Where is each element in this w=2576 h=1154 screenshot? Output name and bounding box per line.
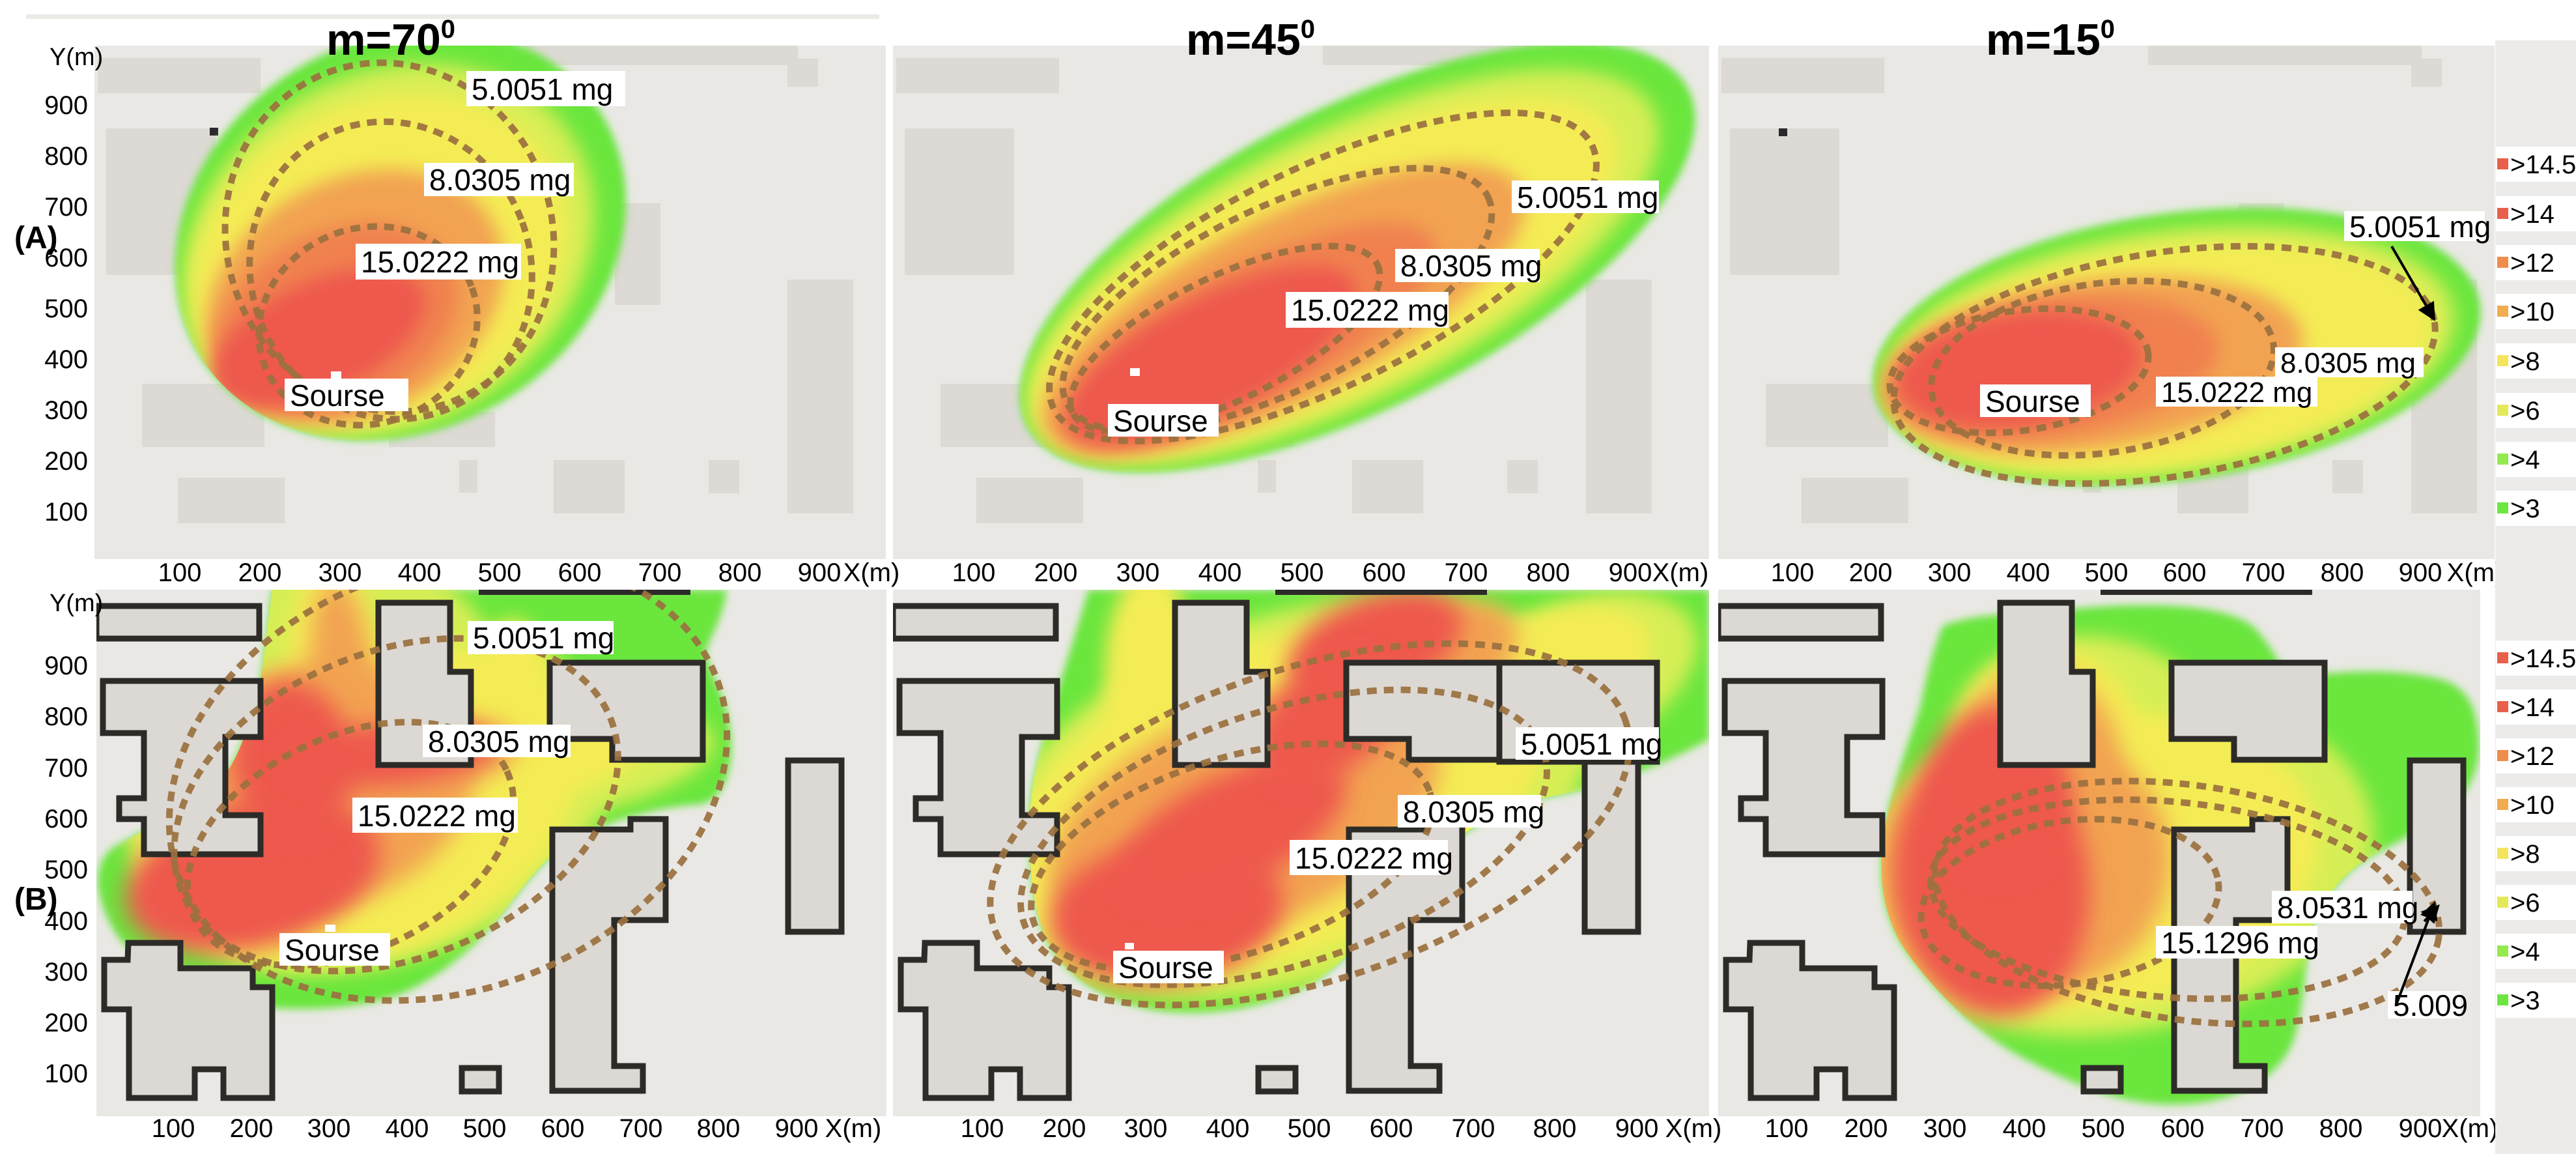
svg-text:5.0051 mg: 5.0051 mg [2349,210,2491,244]
svg-text:900: 900 [2399,558,2442,587]
svg-text:X(m): X(m) [2442,1114,2498,1143]
svg-text:>14.5: >14.5 [2510,151,2576,179]
svg-text:Sourse: Sourse [285,933,380,967]
svg-text:800: 800 [44,142,88,171]
svg-text:800: 800 [2321,558,2364,587]
svg-text:15.1296 mg: 15.1296 mg [2161,926,2319,960]
svg-text:200: 200 [238,558,282,587]
svg-text:100: 100 [961,1114,1004,1143]
svg-text:100: 100 [1771,558,1815,587]
svg-text:600: 600 [2163,558,2207,587]
svg-text:400: 400 [2003,1114,2046,1143]
svg-text:>12: >12 [2510,742,2555,771]
svg-text:8.0305 mg: 8.0305 mg [1400,249,1542,283]
svg-text:Sourse: Sourse [290,379,385,412]
svg-text:400: 400 [44,345,88,374]
svg-text:5.009: 5.009 [2393,988,2468,1022]
svg-text:500: 500 [2085,558,2129,587]
svg-text:900: 900 [1609,558,1652,587]
svg-text:500: 500 [463,1114,507,1143]
svg-text:300: 300 [307,1114,351,1143]
svg-text:X(m): X(m) [825,1114,882,1143]
svg-text:600: 600 [44,805,88,833]
svg-text:800: 800 [44,702,88,731]
svg-text:400: 400 [1206,1114,1250,1143]
svg-text:700: 700 [1452,1114,1495,1143]
svg-text:700: 700 [638,558,682,587]
svg-text:600: 600 [2161,1114,2205,1143]
svg-text:500: 500 [44,856,88,884]
svg-text:200: 200 [1034,558,1078,587]
svg-text:15.0222 mg: 15.0222 mg [1291,293,1449,327]
svg-text:15.0222 mg: 15.0222 mg [2161,377,2312,409]
svg-text:Sourse: Sourse [1118,951,1213,985]
svg-text:(B): (B) [14,882,58,917]
svg-text:Y(m): Y(m) [50,590,103,617]
svg-text:500: 500 [44,295,88,323]
svg-text:(A): (A) [14,221,58,255]
svg-text:200: 200 [230,1114,274,1143]
svg-text:800: 800 [718,558,762,587]
svg-text:>14: >14 [2510,693,2555,722]
svg-text:>6: >6 [2510,889,2540,917]
svg-text:600: 600 [1370,1114,1413,1143]
svg-text:X(m): X(m) [1652,558,1709,587]
svg-text:900: 900 [44,652,88,680]
svg-text:300: 300 [44,958,88,987]
svg-text:>8: >8 [2510,840,2540,869]
svg-text:5.0051 mg: 5.0051 mg [1521,727,1662,761]
svg-text:>3: >3 [2510,987,2540,1015]
svg-text:400: 400 [2007,558,2050,587]
svg-text:500: 500 [478,558,522,587]
svg-text:200: 200 [44,447,88,476]
svg-text:300: 300 [1928,558,1972,587]
svg-text:100: 100 [1765,1114,1809,1143]
svg-text:700: 700 [1445,558,1488,587]
svg-text:100: 100 [952,558,996,587]
svg-text:200: 200 [1043,1114,1086,1143]
svg-text:5.0051 mg: 5.0051 mg [1517,180,1658,214]
svg-text:800: 800 [1533,1114,1577,1143]
svg-text:Sourse: Sourse [1113,404,1208,438]
svg-text:900: 900 [44,91,88,120]
svg-text:8.0305 mg: 8.0305 mg [429,163,571,197]
svg-text:15.0222 mg: 15.0222 mg [361,245,519,279]
svg-text:8.0305 mg: 8.0305 mg [2280,347,2416,379]
svg-text:900: 900 [775,1114,819,1143]
svg-text:600: 600 [558,558,602,587]
svg-text:>14: >14 [2510,200,2555,229]
svg-text:700: 700 [2241,1114,2284,1143]
svg-text:200: 200 [1849,558,1893,587]
svg-text:700: 700 [44,193,88,222]
svg-text:600: 600 [1363,558,1406,587]
svg-text:200: 200 [44,1009,88,1037]
svg-text:8.0305 mg: 8.0305 mg [428,725,569,758]
svg-text:m=450: m=450 [1186,15,1315,65]
svg-text:400: 400 [1198,558,1242,587]
svg-text:400: 400 [386,1114,429,1143]
svg-text:15.0222 mg: 15.0222 mg [358,799,516,833]
svg-text:100: 100 [158,558,202,587]
svg-text:100: 100 [44,1060,88,1088]
svg-text:300: 300 [1116,558,1160,587]
svg-text:>14.5: >14.5 [2510,644,2576,673]
svg-text:800: 800 [2319,1114,2363,1143]
svg-text:>4: >4 [2510,938,2540,966]
svg-text:700: 700 [619,1114,663,1143]
svg-text:Sourse: Sourse [1985,384,2080,418]
svg-text:600: 600 [541,1114,585,1143]
svg-text:800: 800 [1527,558,1570,587]
svg-text:900: 900 [1615,1114,1659,1143]
svg-text:8.0305 mg: 8.0305 mg [1403,795,1544,829]
svg-text:100: 100 [44,498,88,527]
svg-text:X(m): X(m) [843,558,900,587]
svg-text:m=150: m=150 [1986,15,2115,65]
svg-text:5.0051 mg: 5.0051 mg [473,621,614,655]
svg-text:>6: >6 [2510,397,2540,426]
svg-text:15.0222 mg: 15.0222 mg [1295,841,1453,875]
svg-text:Y(m): Y(m) [50,44,103,71]
svg-text:8.0531 mg: 8.0531 mg [2277,891,2418,925]
svg-text:400: 400 [398,558,442,587]
svg-text:>12: >12 [2510,249,2555,278]
svg-text:>4: >4 [2510,446,2540,474]
svg-text:500: 500 [1281,558,1324,587]
svg-text:200: 200 [1845,1114,1888,1143]
svg-text:900: 900 [2399,1114,2442,1143]
svg-text:>10: >10 [2510,298,2555,326]
svg-text:>8: >8 [2510,347,2540,376]
svg-text:>3: >3 [2510,495,2540,523]
svg-text:800: 800 [697,1114,741,1143]
svg-text:m=700: m=700 [326,15,455,65]
svg-text:5.0051 mg: 5.0051 mg [472,72,613,106]
svg-text:300: 300 [44,396,88,425]
svg-text:900: 900 [798,558,842,587]
svg-text:>10: >10 [2510,791,2555,820]
svg-text:300: 300 [1923,1114,1967,1143]
svg-text:300: 300 [318,558,362,587]
svg-text:700: 700 [44,754,88,783]
svg-text:500: 500 [1288,1114,1331,1143]
svg-text:700: 700 [2242,558,2286,587]
svg-text:100: 100 [152,1114,195,1143]
svg-text:500: 500 [2082,1114,2125,1143]
svg-text:X(m): X(m) [2447,558,2504,587]
svg-text:X(m): X(m) [1665,1114,1722,1143]
svg-text:300: 300 [1124,1114,1168,1143]
